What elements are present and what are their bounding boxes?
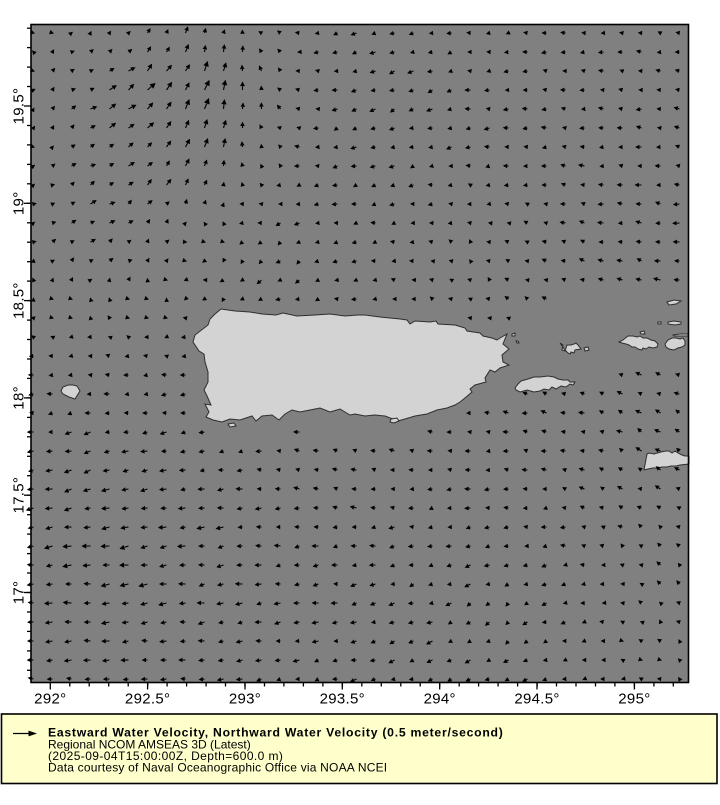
svg-text:292.5°: 292.5° <box>125 691 170 708</box>
svg-text:18.5°: 18.5° <box>11 282 28 319</box>
svg-text:293.5°: 293.5° <box>320 691 365 708</box>
svg-text:18°: 18° <box>11 386 28 410</box>
svg-text:293°: 293° <box>229 691 261 708</box>
svg-text:19.5°: 19.5° <box>11 88 28 125</box>
svg-text:294°: 294° <box>424 691 456 708</box>
svg-text:294.5°: 294.5° <box>514 691 559 708</box>
svg-text:292°: 292° <box>34 691 66 708</box>
svg-text:Data courtesy of Naval Oceanog: Data courtesy of Naval Oceanographic Off… <box>48 760 387 774</box>
svg-text:19°: 19° <box>11 192 28 216</box>
svg-text:17°: 17° <box>11 581 28 605</box>
svg-text:295°: 295° <box>618 691 650 708</box>
svg-text:17.5°: 17.5° <box>11 477 28 514</box>
